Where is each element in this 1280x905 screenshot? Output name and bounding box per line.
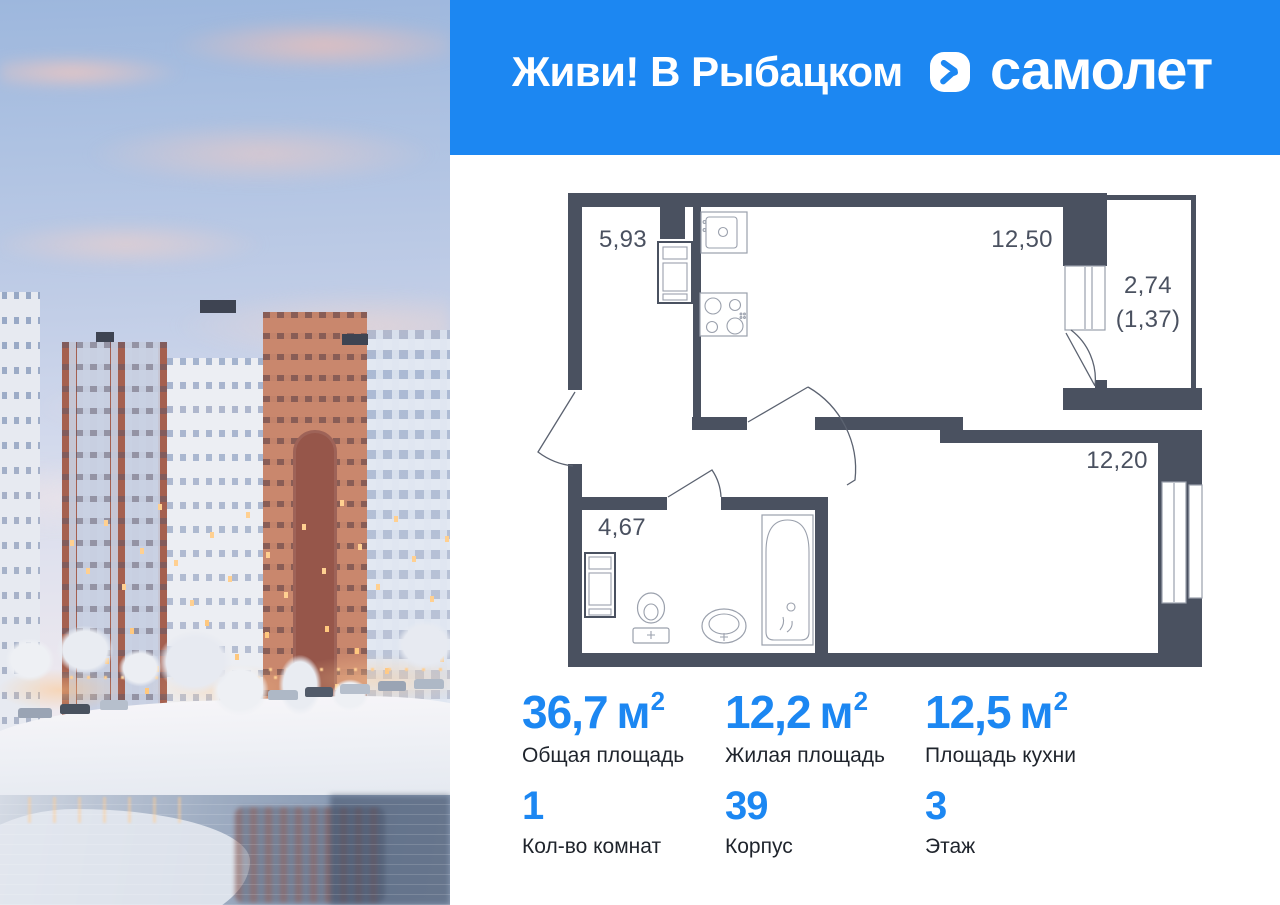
- parked-car: [414, 679, 444, 689]
- samolet-logo-icon: [930, 52, 970, 92]
- stat-living-area: 12,2м2 Жилая площадь: [725, 678, 925, 768]
- room-label-balcony-secondary: (1,37): [1116, 306, 1181, 333]
- room-label-kitchen-living: 12,50: [991, 226, 1053, 253]
- stat-total-area-value: 36,7м2: [522, 678, 722, 735]
- door-swing-arcs: [538, 330, 1095, 497]
- bathtub-icon: [762, 515, 813, 645]
- kitchen-sink-icon: [701, 212, 747, 253]
- parked-car: [60, 704, 90, 714]
- stat-floor-number: 3 Этаж: [925, 786, 1125, 859]
- brand-name: самолет: [990, 50, 1212, 90]
- project-title: Живи! В Рыбацком: [512, 48, 903, 96]
- stat-rooms-count: 1 Кол-во комнат: [522, 786, 722, 859]
- apartment-floorplan: 5,93 12,50 2,74 (1,37) 4,67 12,20: [525, 180, 1215, 680]
- washbasin-icon: [702, 609, 746, 643]
- stat-rooms-count-label: Кол-во комнат: [522, 835, 722, 859]
- toilet-icon: [633, 593, 669, 643]
- room-label-room: 12,20: [1086, 447, 1148, 474]
- stat-living-area-value: 12,2м2: [725, 678, 925, 735]
- parked-car: [305, 687, 333, 697]
- stat-rooms-count-value: 1: [522, 786, 722, 826]
- parked-car: [378, 681, 406, 691]
- room-label-balcony: 2,74: [1124, 272, 1172, 299]
- project-render-photo: [0, 0, 450, 905]
- room-label-bathroom: 4,67: [598, 514, 646, 541]
- snowy-trees: [0, 0, 450, 905]
- stat-kitchen-area: 12,5м2 Площадь кухни: [925, 678, 1125, 768]
- parked-car: [100, 700, 128, 710]
- frozen-river: [0, 795, 450, 905]
- stat-building-number-value: 39: [725, 786, 925, 826]
- stat-floor-number-label: Этаж: [925, 835, 1125, 859]
- header-banner: Живи! В Рыбацком самолет: [450, 0, 1280, 155]
- parked-car: [18, 708, 52, 718]
- brand-logo: самолет: [930, 52, 1212, 92]
- stove-icon: [700, 293, 747, 336]
- stat-total-area: 36,7м2 Общая площадь: [522, 678, 722, 768]
- parked-car: [340, 684, 370, 694]
- parked-car: [268, 690, 298, 700]
- balcony-window: [1065, 266, 1105, 330]
- kitchen-cabinet-icon: [658, 242, 692, 303]
- stat-kitchen-area-value: 12,5м2: [925, 678, 1125, 735]
- bathroom-cabinet-icon: [585, 553, 615, 617]
- stat-living-area-label: Жилая площадь: [725, 744, 925, 768]
- stat-building-number-label: Корпус: [725, 835, 925, 859]
- stat-floor-number-value: 3: [925, 786, 1125, 826]
- stat-kitchen-area-label: Площадь кухни: [925, 744, 1125, 768]
- room-window: [1162, 482, 1202, 603]
- water-ripples: [0, 795, 450, 905]
- room-label-hallway: 5,93: [599, 226, 647, 253]
- stat-building-number: 39 Корпус: [725, 786, 925, 859]
- stat-total-area-label: Общая площадь: [522, 744, 722, 768]
